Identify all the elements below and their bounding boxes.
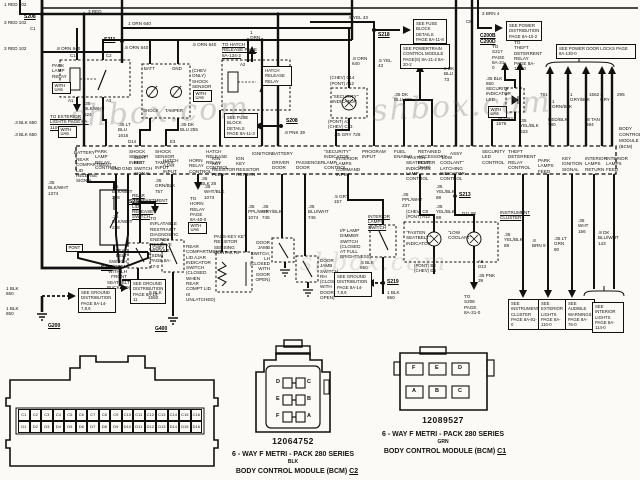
note-text: TO S217 PAGE 8A-31-0	[492, 44, 508, 70]
note-box: SEE FUSE BLOCK DETAILS PAGE 8A-11-8	[413, 19, 447, 44]
wire-label: .8 ORN 640	[124, 45, 152, 50]
option-box: WITH UA6	[58, 126, 77, 138]
pin-cell: C6	[76, 409, 88, 421]
c1-module: BODY CONTROL MODULE (BCM) C1	[360, 448, 530, 456]
pin-cell: C13	[156, 409, 168, 421]
splice-label: S233	[129, 200, 141, 205]
pin-cell: D15	[179, 421, 191, 433]
connector-c1-outline	[394, 347, 494, 410]
wire-label: .8 ORN 640	[56, 46, 84, 51]
wire-label: .5 YEL 43	[348, 15, 372, 20]
bcm-pin-label: THEFT DETERRENT RELAY CONTROL	[508, 149, 532, 170]
pin-label: (PONT) A12	[330, 82, 354, 87]
note-text: TO HATCH RELEASE PAGE 8A-134-2	[222, 42, 262, 58]
splice-label: G200	[48, 324, 60, 329]
wire-label: 1 RED 102	[4, 2, 34, 7]
wire-label: .3 BLK 650	[14, 132, 40, 137]
bcm-name: BODY	[619, 126, 632, 131]
pin-cell: C8	[99, 409, 111, 421]
bcm-pin-label: KEY IGNITION SIGNAL	[562, 156, 580, 172]
c1-pin-letter: A	[412, 389, 416, 395]
connector-c2-outline	[256, 340, 330, 432]
wire-label: .8 ORN 640	[352, 56, 368, 67]
bcm-pin-label: PARK LAMPS FEED	[538, 158, 556, 174]
wire-label: .8 TAN 694	[586, 117, 600, 128]
pin-cell: D16	[191, 421, 203, 433]
pin-label: (CHEV) D4	[414, 269, 436, 274]
pin-cell: D6	[76, 421, 88, 433]
bcm-pin-label: PROGRAM INPUT	[362, 149, 382, 160]
wire-label: .35 YEL/BLK 88	[436, 204, 454, 220]
note-box: SEE INSTRUMENT CLUSTER PAGE 8A-81-0	[508, 299, 540, 330]
note-text: TO S208 PAGE 8A-31-0	[464, 294, 482, 315]
c2-pin-letter: A	[307, 414, 311, 420]
c1-pin-letter: F	[412, 366, 415, 372]
wire-label: .35 LT GRN 80	[554, 236, 570, 252]
bcm-pin-label: PASSENGER DOOR	[296, 160, 316, 171]
c1-part-number: 12089527	[412, 416, 474, 425]
bcm-pin-label: REAR COMPARTMENT LID RELEASE SIGNAL	[76, 157, 102, 183]
component-label: PASS-KEY KEY RESISTOR SENSING CONTACTS	[214, 234, 252, 255]
note-text: TO THEFT DETERRENT RELAY PAGE 8A-133-0	[514, 40, 536, 72]
bcm-name: (BCM)	[619, 144, 632, 149]
wire-label: .35 BLK/WHT 1374	[48, 180, 72, 196]
bcm-pin-label: HATCH AJAR INPUT	[163, 158, 181, 174]
bcm-pin-label: BATTERY	[74, 150, 94, 155]
pin-cell: D14	[168, 421, 180, 433]
pin-label: BATT	[144, 67, 155, 72]
wire-label: 1 ORN 640	[128, 21, 156, 26]
wire-label: 1562	[589, 92, 599, 97]
c2-pin-letter: E	[276, 397, 280, 403]
pin-label: A3	[106, 99, 111, 104]
splice-label: S219	[387, 280, 399, 285]
bcm-pin-label: HORN RELAY CONTROL	[189, 158, 207, 174]
component-label: (CHEV ONLY) SHOCK SENSOR	[192, 68, 214, 89]
splice-label: G400	[155, 327, 167, 332]
pin-label: GND	[172, 67, 182, 72]
pin-label: TAMPER	[165, 109, 183, 114]
wire-label: .35 BLK/WHT 238	[112, 214, 132, 230]
wire-label: .35 YEL/BLK 633	[520, 118, 538, 134]
component-label: DOOR JAMB SWITCH, LH (CLOSED WITH DOOR O…	[248, 240, 270, 282]
c2-pin-letter: B	[307, 397, 311, 403]
wire-label: .8 BRN 9	[532, 238, 546, 249]
pin-cell: C15	[179, 409, 191, 421]
component-label: "LOW COOLANT"	[448, 230, 466, 241]
wire-label: .5 BLK 1550	[148, 290, 170, 301]
pin-cell: C1	[18, 409, 30, 421]
note-box: SEE POWER DOOR LOCKS PAGE 8A-130-0	[556, 44, 636, 59]
wire-label: 2 DK BLU 73	[444, 66, 456, 82]
note-box: SEE EXTERIOR LIGHTS PAGE 8A-110-0	[538, 299, 568, 330]
pin-cell: C14	[168, 409, 180, 421]
bcm-pin-label: GND	[111, 166, 121, 171]
wire-label: .35 PPL/WHT 237	[402, 192, 420, 208]
wire-label: .5 GRY 157	[334, 194, 350, 205]
wire-label: 1 GRY/BLK	[570, 92, 584, 103]
bcm-pin-label: "LOW COOLANT" LATCHING INDICATOR CONTROL	[440, 155, 468, 181]
pin-label: C2	[106, 54, 112, 59]
wire-label: .35 BLU/WHT 746	[308, 204, 324, 220]
bcm-pin-label: INTERIOR LAMPS FEED	[606, 156, 622, 172]
pin-cell: D1	[18, 421, 30, 433]
wire-label: .35 BLK/WHT 238	[112, 184, 132, 200]
splice-label: S218	[378, 33, 390, 38]
pin-label: (PONT) A12	[406, 215, 430, 220]
pin-label: D14	[128, 140, 136, 145]
splice-label: S213	[459, 193, 471, 198]
option-box: WITH UA6	[52, 82, 71, 94]
wire-label: .35 LT BLU 1616	[118, 122, 136, 138]
pin-cell: D13	[156, 421, 168, 433]
wire-label: 1 BLK 650	[6, 286, 24, 297]
wire-label: .35 DK BLU 229	[394, 92, 418, 103]
pin-label: C1	[30, 27, 36, 32]
wire-label: 1 ORN	[250, 30, 260, 41]
pin-cell: D10	[122, 421, 134, 433]
c1-designator: C1	[497, 448, 506, 455]
wire-label: .35 WHT/BLK 1073	[204, 184, 222, 200]
wire-label: .35 GRY 728	[334, 132, 364, 137]
pin-label: C8	[466, 20, 472, 25]
wire-label: 781	[540, 92, 548, 97]
c2-pin-letter: D	[276, 380, 280, 386]
wire-label: .35 GRY 1579	[496, 116, 514, 127]
bcm-pin-label: IGN KEY RESISTOR RETURN	[236, 156, 254, 177]
c2-pin-letter: C	[307, 380, 311, 386]
c1-pin-letter: C	[458, 389, 462, 395]
c2-module-text: BODY CONTROL MODULE (BCM)	[236, 468, 347, 475]
variant-box: PONT	[66, 244, 83, 252]
wire-label: 3 BRN 4	[482, 11, 506, 16]
pin-cell: D2	[30, 421, 42, 433]
pin-cell: C3	[41, 409, 53, 421]
splice-label: S211	[104, 38, 115, 43]
c2-series: 6 - WAY F METRI - PACK 280 SERIES	[208, 451, 378, 459]
c2-pin-letter: F	[276, 414, 279, 420]
component-label: INSTRUMENT CLUSTER	[500, 210, 524, 221]
c2-module: BODY CONTROL MODULE (BCM) C2	[212, 468, 382, 476]
bcm-pin-label: GND	[122, 166, 131, 171]
pin-cell: C12	[145, 409, 157, 421]
c1-pin-letter: D	[458, 366, 462, 372]
c2-designator: C2	[349, 468, 358, 475]
pin-label: D13	[478, 265, 486, 270]
component-label: REAR COMPARTMENT LID AJAR INDICATOR SWIT…	[186, 244, 211, 302]
connector-32-row-c: C1C2C3C4C5C6C7C8C9C10C11C12C13C14C15C16	[18, 409, 202, 421]
wire-label: .8 DK BLU/WHT 143	[598, 230, 613, 246]
wire-label: .35 GRN/BLK 757	[155, 178, 171, 194]
wire-label: 3 RED	[88, 9, 102, 14]
bcm-name: CONTROL	[619, 132, 640, 137]
wire-label: .35 PNK 39	[478, 273, 496, 284]
bcm-pin-label: "FASTEN SEATBELT" INDICATOR LAMP CONTROL	[406, 155, 432, 181]
c2-color: BLK	[208, 460, 378, 465]
pin-label: (CHEV) C13	[328, 125, 352, 130]
option-box: WITH UA6	[193, 90, 212, 102]
pin-cell: C11	[133, 409, 145, 421]
component-label: "SECURITY" INDICATOR	[332, 94, 347, 105]
bcm-pin-label: SECURITY LED CONTROL	[482, 149, 502, 165]
pin-label: A2	[240, 63, 245, 68]
bcm-pin-label: BATTERY	[272, 151, 288, 156]
c1-module-text: BODY CONTROL MODULE (BCM)	[384, 448, 495, 455]
pin-cell: C16	[191, 409, 203, 421]
c1-color: GRN	[358, 440, 528, 445]
pin-label: A1	[68, 99, 73, 104]
bcm-pin-label: IGNITION	[252, 151, 270, 156]
wire-label: .8 PNK 39	[284, 130, 308, 135]
pin-label: SHOCK	[143, 109, 159, 114]
component-label: SEAT BELT SWITCH (OPEN WITH LH FRONT SEA…	[107, 248, 127, 290]
c1-pin-letter: E	[435, 366, 439, 372]
pin-cell: C5	[64, 409, 76, 421]
pin-label: D11 88	[462, 212, 476, 217]
wire-label: .5 BLK 650	[360, 260, 378, 271]
note-box: SEE FUSE BLOCK DETAILS PAGE 8A-11-3	[224, 113, 258, 138]
bcm-pin-label: SEAT BELT SWITCH SIGNAL	[134, 155, 152, 176]
bcm-pin-label: IGN KEY RESISTOR FEED	[212, 156, 230, 177]
wire-label: 3 RED 102	[4, 20, 34, 25]
pin-cell: D9	[110, 421, 122, 433]
component-label: HATCH RELEASE RELAY	[262, 66, 292, 86]
c1-series: 6 - WAY F METRI - PACK 280 SERIES	[358, 431, 528, 439]
bcm-pin-label: DRIVER DOOR	[272, 160, 290, 171]
wire-label: .35 GRY/BLK 745	[262, 204, 280, 220]
pin-cell: D3	[41, 421, 53, 433]
c1-pin-letter: B	[435, 389, 439, 395]
note-box: SEE AUDIBLE WARNINGS PAGE 8A-76-0	[565, 299, 595, 330]
wire-label: .3 BLK 650	[14, 120, 40, 125]
note-box: SEE POWER DISTRIBUTION PAGE 8A-10-2	[506, 21, 542, 41]
component-label: PARK LAMP RELAY	[52, 63, 69, 79]
option-box: WITH UA6	[188, 222, 207, 234]
note-box: SEE INTERIOR LIGHTS PAGE 8A-114-0	[592, 302, 624, 333]
pin-cell: D5	[64, 421, 76, 433]
bcm-name: MODULE	[619, 138, 639, 143]
pin-cell: D7	[87, 421, 99, 433]
component-label: INTERIOR LAMPS SWITCH	[368, 214, 402, 230]
wire-label: .5 ORN 640	[192, 42, 220, 47]
component-label: I/P LAMP DIMMER SWITCH (CLOSED AT FULL B…	[340, 228, 366, 260]
wiring-diagram-page: shbox.com shbox.com shbox.com 1 RED 102 …	[0, 0, 640, 480]
pin-cell: C2	[30, 409, 42, 421]
pin-cell: D12	[145, 421, 157, 433]
pin-cell: C4	[53, 409, 65, 421]
component-label: "FASTEN SEATBELT" INDICATOR	[406, 230, 426, 246]
splice-label: S208	[286, 119, 298, 124]
wire-label: .5 YEL 43	[378, 58, 392, 69]
wire-label: .35 BLK 650	[486, 76, 504, 87]
bcm-pin-label: INTERIOR LAMPS RETURN	[585, 156, 603, 172]
pin-cell: C7	[87, 409, 99, 421]
note-box: SEE GROUND DISTRIBUTION PAGE 8A-14-7,8,9	[334, 272, 372, 297]
wire-label: 1 GRY	[600, 92, 610, 103]
wire-label: 3 RED 102	[4, 46, 34, 51]
pin-label: E3	[170, 140, 175, 145]
wire-label: 1 ORN/BLK	[552, 99, 566, 110]
component-label: SECURITY INDICATOR LED	[486, 86, 504, 102]
wire-label: .35 WHT 156	[578, 218, 592, 234]
wire-label: 1 BLK 650	[6, 306, 24, 317]
pin-cell: C10	[122, 409, 134, 421]
wire-label: RED/BLK 780	[548, 117, 564, 128]
wire-label: 295	[617, 92, 625, 97]
note-box: SEE GROUND DISTRIBUTION PAGE 8A-14-7,8,9	[78, 288, 116, 313]
bcm-pin-label: INTERIOR LAMPS COMMAND INPUT	[336, 156, 358, 177]
wire-label: 1 BLK 650	[387, 290, 403, 301]
wire-label: .35 YEL/BLK 88	[436, 184, 454, 200]
pin-cell: D4	[53, 421, 65, 433]
pin-label: C1	[70, 54, 76, 59]
pin-cell: D11	[133, 421, 145, 433]
note-text: TO HORN RELAY PAGE 8A-40-0	[190, 196, 210, 222]
pin-cell: D8	[99, 421, 111, 433]
wire-label: .35 DK BLU 255	[180, 122, 198, 133]
c2-part-number: 12064752	[262, 437, 324, 446]
note-box: SEE POWERTRAIN CONTROL MODULE PAGE(S) 8A…	[400, 44, 450, 69]
connector-32-row-d: D1D2D3D4D5D6D7D8D9D10D11D12D13D14D15D16	[18, 421, 202, 433]
note-text: TO INFLATABLE RESTRAINT DIAGNOSTIC ENERG…	[150, 216, 176, 269]
pin-cell: C9	[110, 409, 122, 421]
wire-label: .35 YEL/BLK 88	[504, 232, 520, 248]
